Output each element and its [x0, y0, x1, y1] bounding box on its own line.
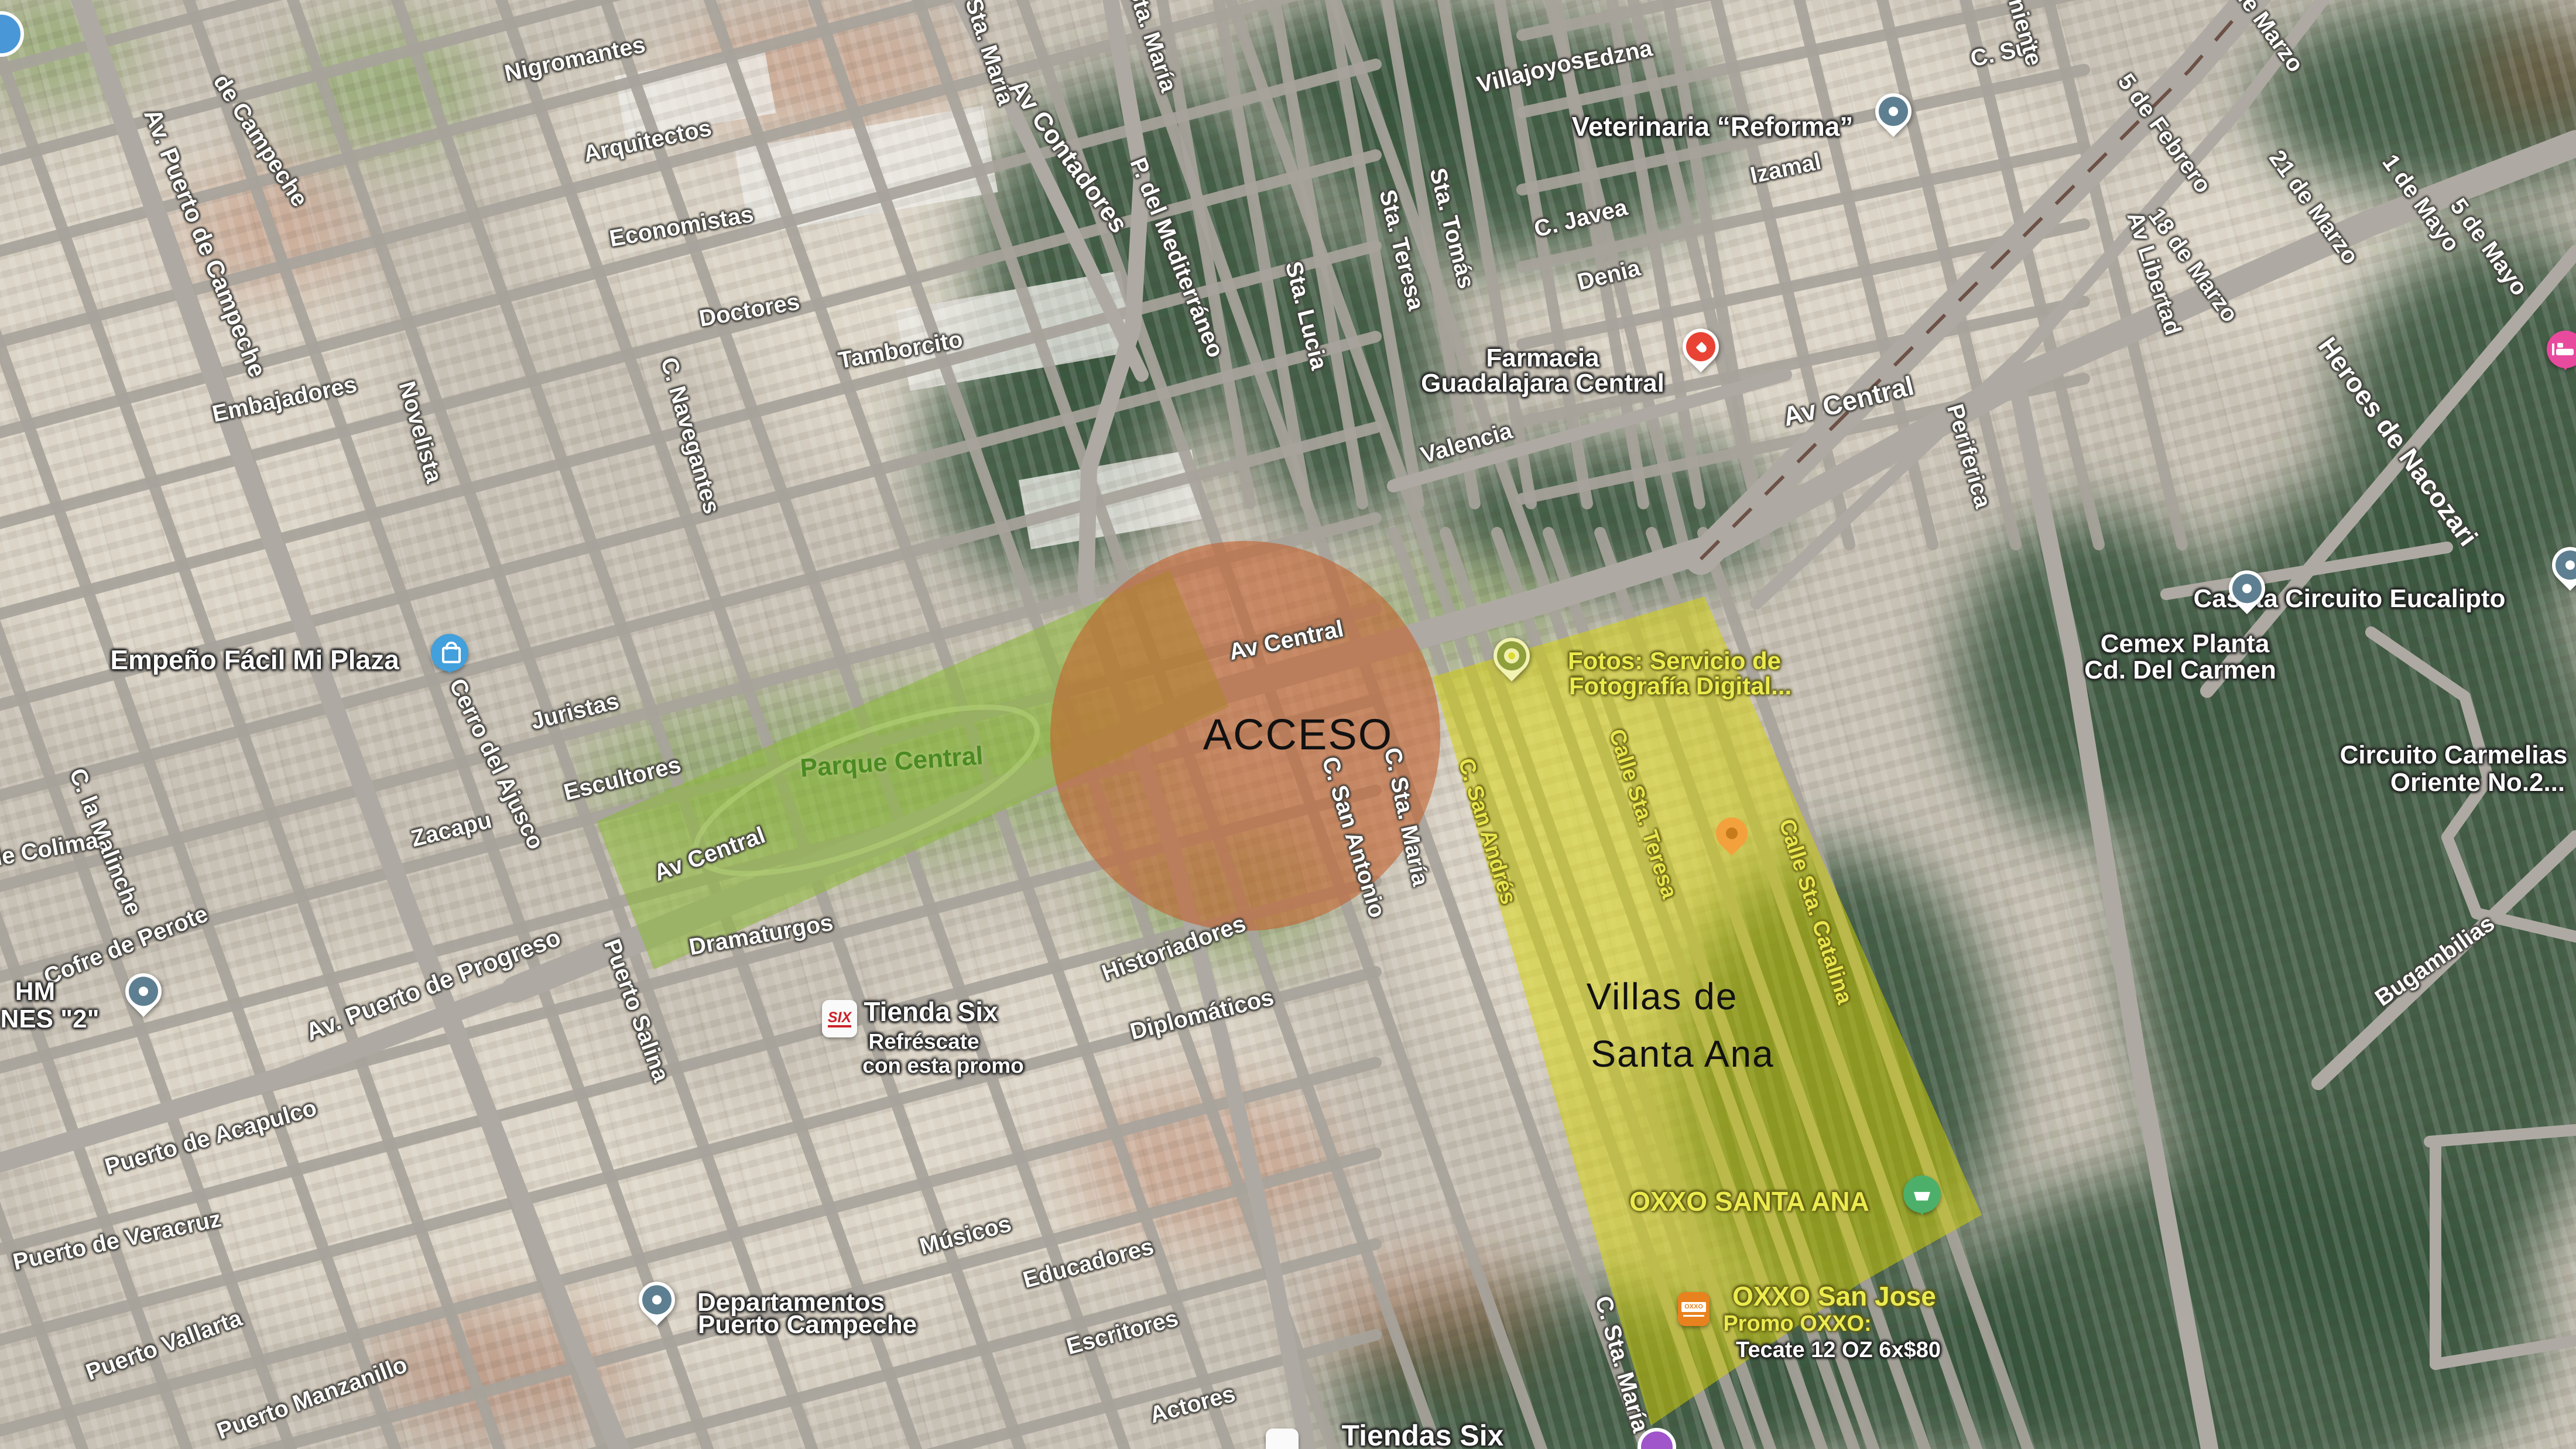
tienda-six-icon[interactable]: SIX	[822, 1000, 857, 1037]
map-canvas[interactable]: de CampecheNigromantesArquitectosEconomi…	[0, 0, 2576, 1449]
shopping-bag-icon	[442, 647, 461, 663]
basket-icon	[1914, 1192, 1930, 1201]
pin-dot-icon	[2550, 544, 2576, 586]
veterinaria-reforma-pin[interactable]	[1868, 85, 1919, 137]
fotos-servicio-pin[interactable]	[1486, 630, 1537, 681]
oxxo-santa-ana-pin[interactable]	[1903, 1176, 1941, 1213]
oxxo-san-jose-icon[interactable]: OXXO	[1678, 1292, 1710, 1326]
lodging-pin[interactable]	[2547, 331, 2576, 368]
departamentos-puerto-campeche-pin[interactable]	[631, 1274, 683, 1325]
pharmacy-icon	[1680, 326, 1722, 368]
hm-nes-pin[interactable]	[118, 965, 169, 1017]
marker-dot-icon	[1710, 811, 1754, 855]
pins-layer: SIXOXXO	[0, 0, 2576, 1449]
caseta-circuito-eucalipto-pin[interactable]	[2544, 539, 2576, 591]
pin-dot-icon	[1873, 91, 1914, 132]
bed-icon	[2556, 349, 2574, 355]
edge-purple-pin[interactable]	[1638, 1428, 1676, 1449]
empeno-facil-pin[interactable]	[431, 634, 468, 672]
camera-poi-icon	[1491, 635, 1533, 677]
cemex-planta-pin[interactable]	[2221, 563, 2273, 614]
edge-blue-pin[interactable]	[0, 11, 24, 57]
farmacia-guadalajara-pin[interactable]	[1675, 321, 1727, 372]
tiendas-six-icon[interactable]	[1266, 1429, 1299, 1449]
pin-dot-icon	[123, 971, 165, 1012]
six-logo-text: SIX	[828, 1010, 851, 1027]
pin-dot-icon	[2226, 568, 2268, 609]
orange-marker-pin[interactable]	[1710, 811, 1754, 855]
pin-dot-icon	[636, 1279, 678, 1321]
oxxo-logo-band: OXXO	[1681, 1302, 1706, 1312]
